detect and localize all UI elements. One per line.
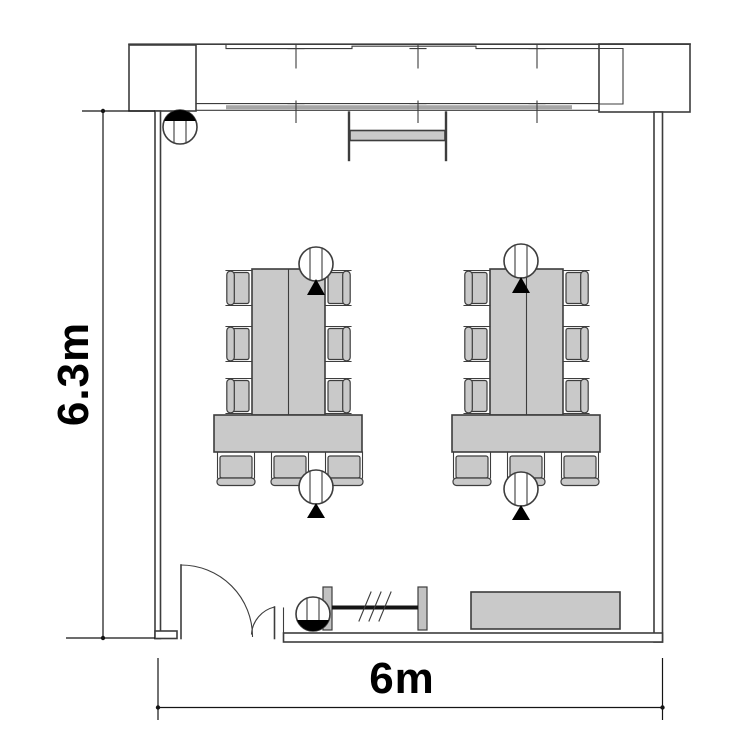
width-dimension-label: 6m bbox=[369, 654, 435, 703]
chair bbox=[464, 327, 490, 362]
chair bbox=[563, 327, 589, 362]
floor-plan-canvas: 6.3m 6m bbox=[0, 0, 750, 750]
chair bbox=[325, 327, 351, 362]
screen-panel bbox=[350, 131, 445, 141]
wall-left bbox=[155, 111, 161, 639]
window-sill bbox=[226, 105, 572, 109]
end-table bbox=[452, 415, 600, 452]
device-circle-icon bbox=[504, 244, 538, 278]
direction-triangle-icon bbox=[307, 503, 325, 518]
chair bbox=[453, 452, 491, 486]
device-circle-icon bbox=[504, 472, 538, 506]
direction-triangle-icon bbox=[512, 505, 530, 520]
door-swing-arc-small bbox=[252, 607, 275, 634]
chair bbox=[464, 271, 490, 306]
door bbox=[181, 565, 284, 639]
ceiling-device-symbol bbox=[504, 472, 538, 520]
floor-plan: 6.3m 6m bbox=[0, 0, 750, 750]
dimension-end-dot bbox=[660, 705, 664, 709]
projection-screen bbox=[349, 113, 446, 161]
device-circle-icon bbox=[299, 247, 333, 281]
chair bbox=[226, 327, 252, 362]
wall-pier-right bbox=[599, 44, 690, 112]
chair bbox=[563, 271, 589, 306]
device-circle-icon bbox=[299, 470, 333, 504]
dimension-end-dot bbox=[156, 705, 160, 709]
ceiling-device-symbol bbox=[299, 470, 333, 518]
wall-pier-left bbox=[129, 45, 196, 111]
chair bbox=[563, 379, 589, 414]
chair bbox=[226, 271, 252, 306]
wall-bottom-left-stub bbox=[155, 631, 177, 639]
dimension-end-dot bbox=[101, 636, 105, 640]
wall-right bbox=[654, 112, 663, 642]
chair bbox=[561, 452, 599, 486]
end-table bbox=[214, 415, 362, 452]
coat-rack bbox=[323, 587, 427, 630]
chair bbox=[217, 452, 255, 486]
chair bbox=[325, 379, 351, 414]
table-group-left bbox=[214, 247, 363, 518]
rack-post bbox=[418, 587, 427, 630]
dimension-end-dot bbox=[101, 109, 105, 113]
door-swing-arc-large bbox=[181, 565, 253, 637]
height-dimension-label: 6.3m bbox=[49, 322, 98, 426]
chair bbox=[464, 379, 490, 414]
cabinet bbox=[471, 592, 620, 629]
ceiling-device-symbol-entrance bbox=[296, 597, 330, 631]
ceiling-device-symbol-corner bbox=[163, 110, 197, 144]
chair bbox=[226, 379, 252, 414]
dimension-left: 6.3m bbox=[49, 109, 155, 640]
wall-bottom bbox=[284, 633, 663, 642]
dimension-bottom: 6m bbox=[156, 654, 665, 720]
table-group-right bbox=[452, 244, 600, 520]
